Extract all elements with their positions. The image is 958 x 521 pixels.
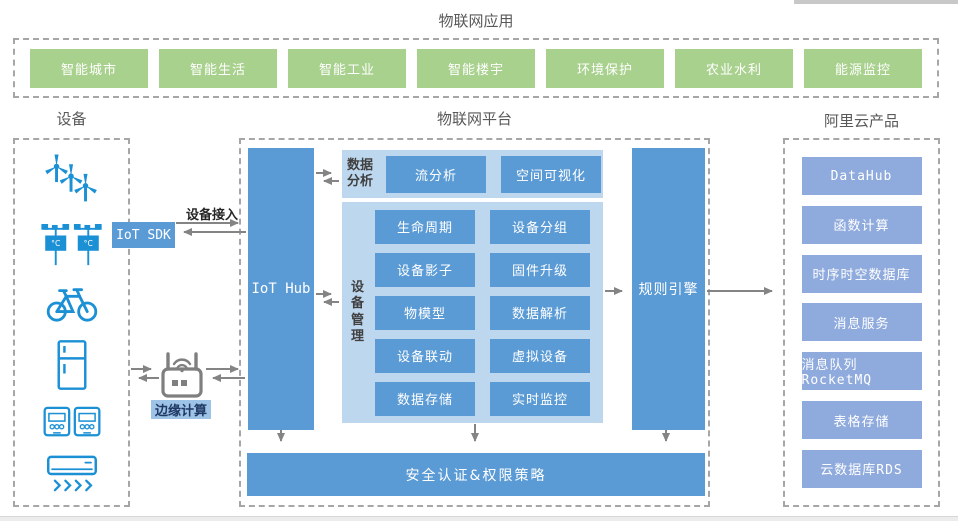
analysis-chip-spatial[interactable]: 空间可视化	[501, 156, 601, 193]
mgmt-chip-lifecycle[interactable]: 生命周期	[375, 210, 475, 244]
svg-text:°C: °C	[83, 239, 92, 248]
mgmt-chip-thing-model[interactable]: 物模型	[375, 296, 475, 330]
app-chip-smart-industry[interactable]: 智能工业	[288, 49, 406, 88]
data-analysis-panel: 数据分析 流分析 空间可视化	[342, 150, 603, 198]
mgmt-chip-device-group[interactable]: 设备分组	[490, 210, 590, 244]
data-analysis-label: 数据分析	[347, 158, 377, 191]
app-chip-smart-city[interactable]: 智能城市	[30, 49, 148, 88]
weather-station-icon: °C °C	[41, 224, 103, 268]
mgmt-chip-realtime-monitor[interactable]: 实时监控	[490, 382, 590, 416]
device-access-label: 设备接入	[176, 204, 248, 223]
svg-text:°C: °C	[51, 239, 60, 248]
product-chip-tablestore[interactable]: 表格存储	[802, 401, 922, 439]
devices-title: 设备	[13, 108, 130, 129]
bicycle-icon	[45, 283, 99, 323]
analysis-chip-stream[interactable]: 流分析	[386, 156, 486, 193]
iot-architecture-diagram: 物联网应用 智能城市 智能生活 智能工业 智能楼宇 环境保护 农业水利 能源监控…	[0, 0, 958, 521]
wifi-router-icon	[159, 351, 205, 400]
devices-panel: °C °C	[13, 138, 130, 507]
mgmt-chip-device-shadow[interactable]: 设备影子	[375, 253, 475, 287]
app-chip-smart-life[interactable]: 智能生活	[159, 49, 277, 88]
cloud-products-title: 阿里云产品	[783, 110, 940, 131]
iot-platform-title: 物联网平台	[239, 108, 710, 129]
mgmt-chip-device-link[interactable]: 设备联动	[375, 339, 475, 373]
refrigerator-icon	[54, 339, 90, 391]
product-chip-rds[interactable]: 云数据库RDS	[802, 450, 922, 488]
mgmt-chip-ota[interactable]: 固件升级	[490, 253, 590, 287]
app-chip-agriculture[interactable]: 农业水利	[675, 49, 793, 88]
app-chip-environment[interactable]: 环境保护	[546, 49, 664, 88]
mgmt-chip-data-storage[interactable]: 数据存储	[375, 382, 475, 416]
mgmt-chip-virtual-device[interactable]: 虚拟设备	[490, 339, 590, 373]
air-conditioner-icon	[45, 455, 99, 493]
device-mgmt-panel: 设备管理 生命周期 设备分组 设备影子 固件升级 物模型 数据解析 设备联动 虚…	[342, 202, 603, 423]
wind-turbine-icon	[41, 152, 103, 208]
product-chip-mns[interactable]: 消息服务	[802, 303, 922, 341]
app-chip-energy[interactable]: 能源监控	[804, 49, 922, 88]
iot-sdk-chip[interactable]: IoT SDK	[112, 222, 175, 248]
product-chip-rocketmq[interactable]: 消息队列RocketMQ	[802, 352, 922, 390]
security-auth-bar[interactable]: 安全认证&权限策略	[247, 453, 705, 496]
window-edge-top	[794, 0, 958, 4]
iot-apps-panel: 智能城市 智能生活 智能工业 智能楼宇 环境保护 农业水利 能源监控	[13, 38, 939, 98]
mgmt-chip-data-parsing[interactable]: 数据解析	[490, 296, 590, 330]
product-chip-tsdb[interactable]: 时序时空数据库	[802, 255, 922, 293]
product-chip-datahub[interactable]: DataHub	[802, 157, 922, 195]
edge-computing-label[interactable]: 边缘计算	[151, 400, 211, 419]
iot-apps-title: 物联网应用	[13, 10, 939, 31]
iot-hub-block[interactable]: IoT Hub	[248, 148, 314, 430]
electric-meter-icon	[42, 406, 102, 439]
window-edge-bottom	[0, 516, 958, 521]
product-chip-function-compute[interactable]: 函数计算	[802, 206, 922, 244]
rule-engine-block[interactable]: 规则引擎	[632, 148, 705, 430]
device-mgmt-label: 设备管理	[351, 280, 367, 345]
app-chip-smart-building[interactable]: 智能楼宇	[417, 49, 535, 88]
cloud-products-panel: DataHub 函数计算 时序时空数据库 消息服务 消息队列RocketMQ 表…	[783, 138, 940, 507]
